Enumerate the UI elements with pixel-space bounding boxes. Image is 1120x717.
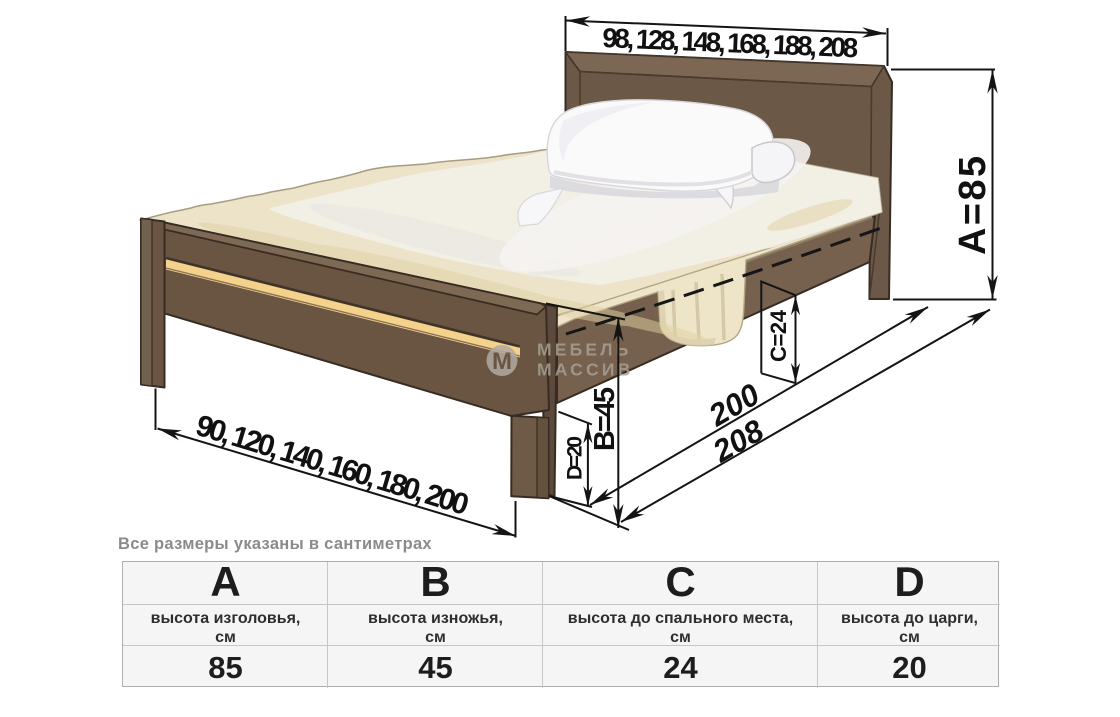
svg-text:М: М	[492, 348, 512, 375]
svg-text:90, 120, 140, 160, 180, 200: 90, 120, 140, 160, 180, 200	[192, 409, 473, 522]
svg-text:D=20: D=20	[564, 436, 587, 480]
svg-text:A=85: A=85	[952, 156, 994, 255]
svg-text:B=45: B=45	[589, 387, 621, 451]
svg-text:C=24: C=24	[766, 309, 791, 362]
